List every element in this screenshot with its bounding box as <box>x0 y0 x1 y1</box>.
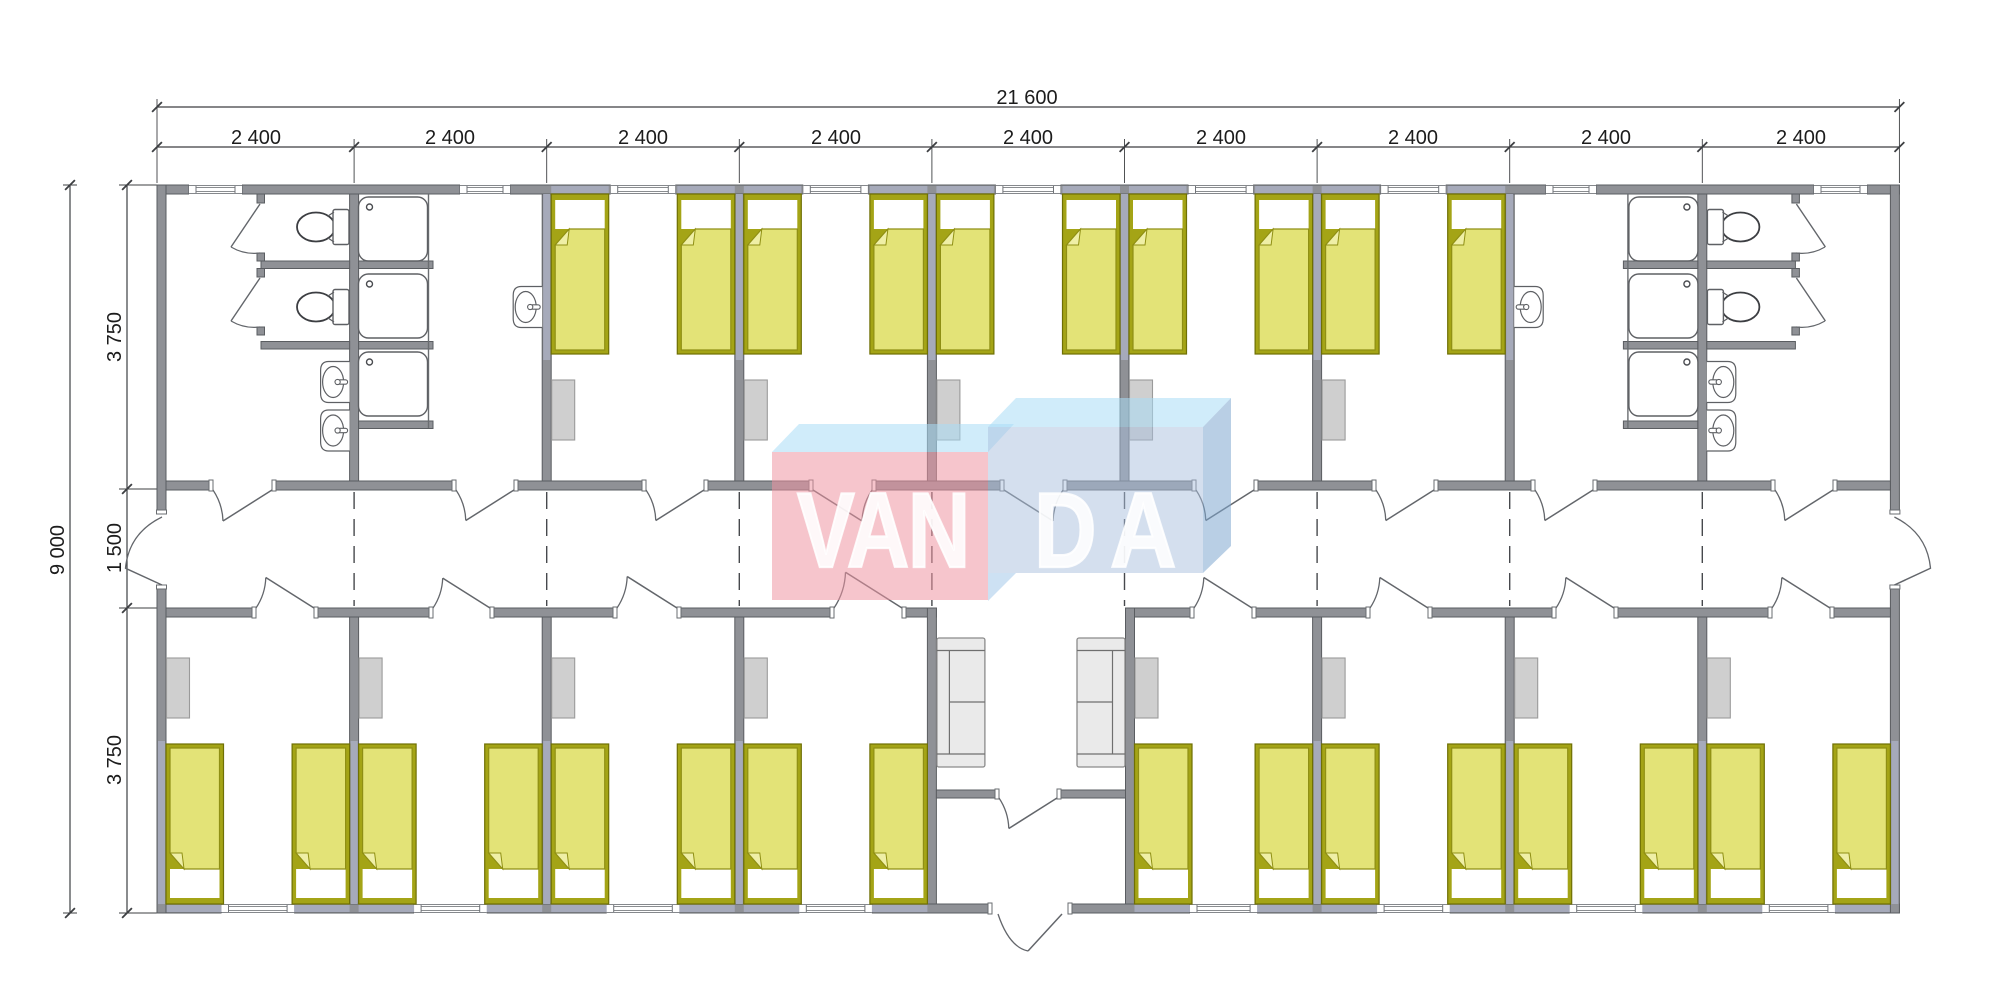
svg-text:D: D <box>1034 470 1097 590</box>
svg-text:2 400: 2 400 <box>811 127 861 149</box>
svg-text:9 000: 9 000 <box>47 525 69 575</box>
svg-text:2 400: 2 400 <box>1776 127 1826 149</box>
svg-text:2 400: 2 400 <box>618 127 668 149</box>
svg-text:A: A <box>1110 472 1176 591</box>
svg-text:21 600: 21 600 <box>996 87 1057 109</box>
svg-text:3 750: 3 750 <box>104 312 126 362</box>
svg-text:2 400: 2 400 <box>1581 127 1631 149</box>
svg-text:2 400: 2 400 <box>1196 127 1246 149</box>
svg-text:2 400: 2 400 <box>231 127 281 149</box>
svg-text:1 500: 1 500 <box>104 523 126 573</box>
svg-text:2 400: 2 400 <box>425 127 475 149</box>
svg-text:2 400: 2 400 <box>1388 127 1438 149</box>
svg-text:VAN: VAN <box>797 470 969 590</box>
svg-text:2 400: 2 400 <box>1003 127 1053 149</box>
svg-text:3 750: 3 750 <box>104 735 126 785</box>
